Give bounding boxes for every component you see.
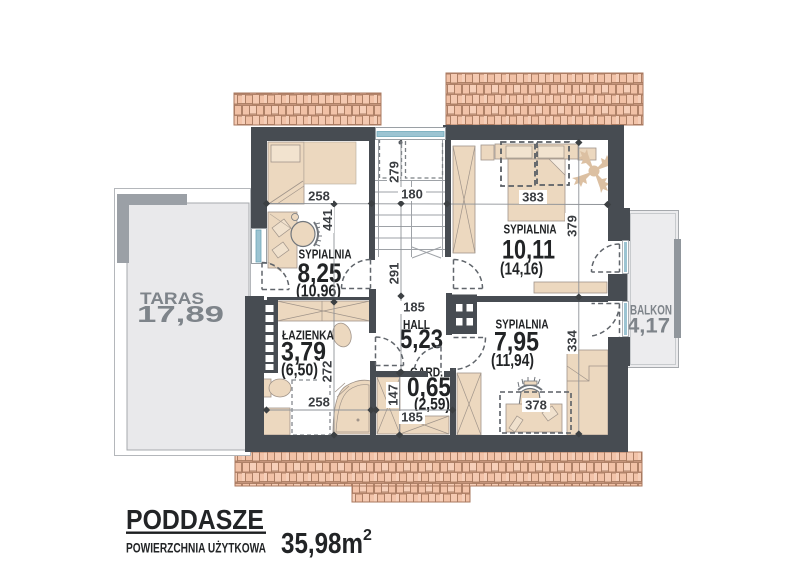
svg-text:(6,50): (6,50) <box>281 360 318 380</box>
svg-text:17,89: 17,89 <box>137 301 224 327</box>
svg-text:5,23: 5,23 <box>400 324 443 354</box>
svg-text:180: 180 <box>401 187 423 202</box>
svg-text:185: 185 <box>403 300 425 315</box>
svg-text:379: 379 <box>565 215 580 237</box>
svg-text:291: 291 <box>387 263 402 285</box>
svg-text:378: 378 <box>525 398 547 413</box>
svg-text:147: 147 <box>386 384 401 406</box>
svg-text:PODDASZE: PODDASZE <box>126 504 264 535</box>
svg-text:334: 334 <box>565 329 580 351</box>
svg-text:441: 441 <box>320 209 335 231</box>
svg-text:272: 272 <box>320 361 335 383</box>
svg-text:279: 279 <box>387 161 402 183</box>
svg-text:185: 185 <box>401 410 423 425</box>
svg-text:2: 2 <box>363 527 372 544</box>
svg-text:(11,94): (11,94) <box>491 350 534 370</box>
svg-text:(14,16): (14,16) <box>500 259 543 279</box>
svg-text:35,98m: 35,98m <box>281 528 363 560</box>
svg-text:258: 258 <box>308 395 330 410</box>
svg-text:258: 258 <box>308 189 330 204</box>
svg-text:4,17: 4,17 <box>627 315 670 338</box>
svg-text:POWIERZCHNIA UŻYTKOWA: POWIERZCHNIA UŻYTKOWA <box>126 541 266 556</box>
svg-text:383: 383 <box>522 190 544 205</box>
